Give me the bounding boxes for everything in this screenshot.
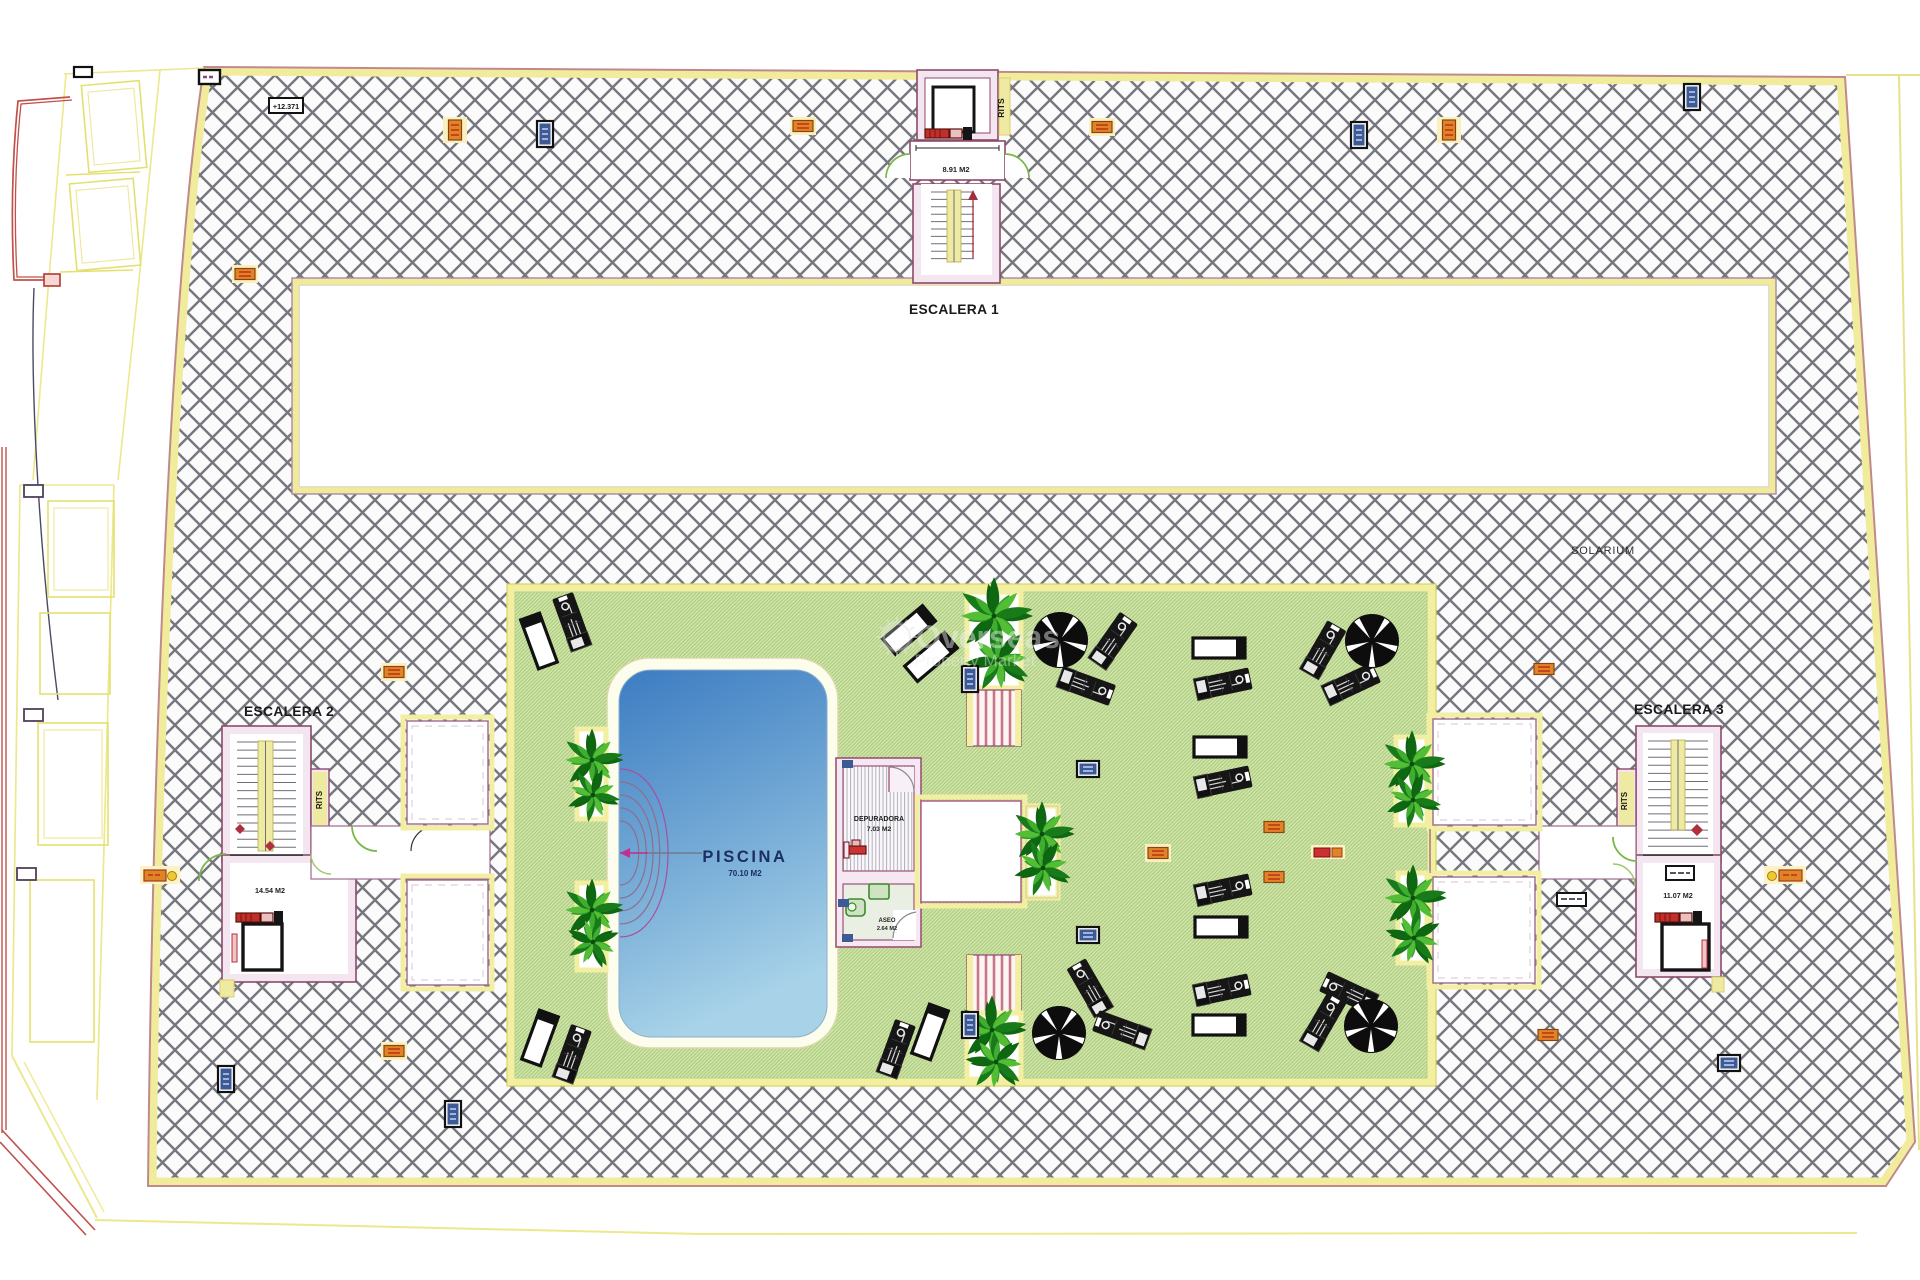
svg-text:14.54 M2: 14.54 M2 [255,886,285,895]
svg-text:ESCALERA 1: ESCALERA 1 [909,302,999,317]
svg-text:RITS: RITS [1620,791,1629,810]
svg-text:7.03 M2: 7.03 M2 [867,826,892,833]
svg-text:2.64 M2: 2.64 M2 [877,926,897,932]
svg-text:11.07 M2: 11.07 M2 [1663,891,1693,900]
svg-text:ESCALERA 3: ESCALERA 3 [1634,702,1724,717]
svg-text:RITS: RITS [996,98,1006,118]
svg-text:Overseas: Overseas [916,619,1060,655]
svg-text:SOLARIUM: SOLARIUM [1571,545,1635,557]
svg-text:ASEO: ASEO [878,918,895,924]
svg-text:70.10 M2: 70.10 M2 [728,869,762,878]
svg-text:PISCINA: PISCINA [702,848,787,866]
svg-text:ESCALERA 2: ESCALERA 2 [244,704,334,719]
svg-text:Property Market: Property Market [915,651,1036,670]
svg-text:DEPURADORA: DEPURADORA [854,816,904,823]
svg-text:RITS: RITS [315,790,324,809]
svg-text:+12.371: +12.371 [273,102,299,111]
svg-text:8.91 M2: 8.91 M2 [942,165,969,174]
